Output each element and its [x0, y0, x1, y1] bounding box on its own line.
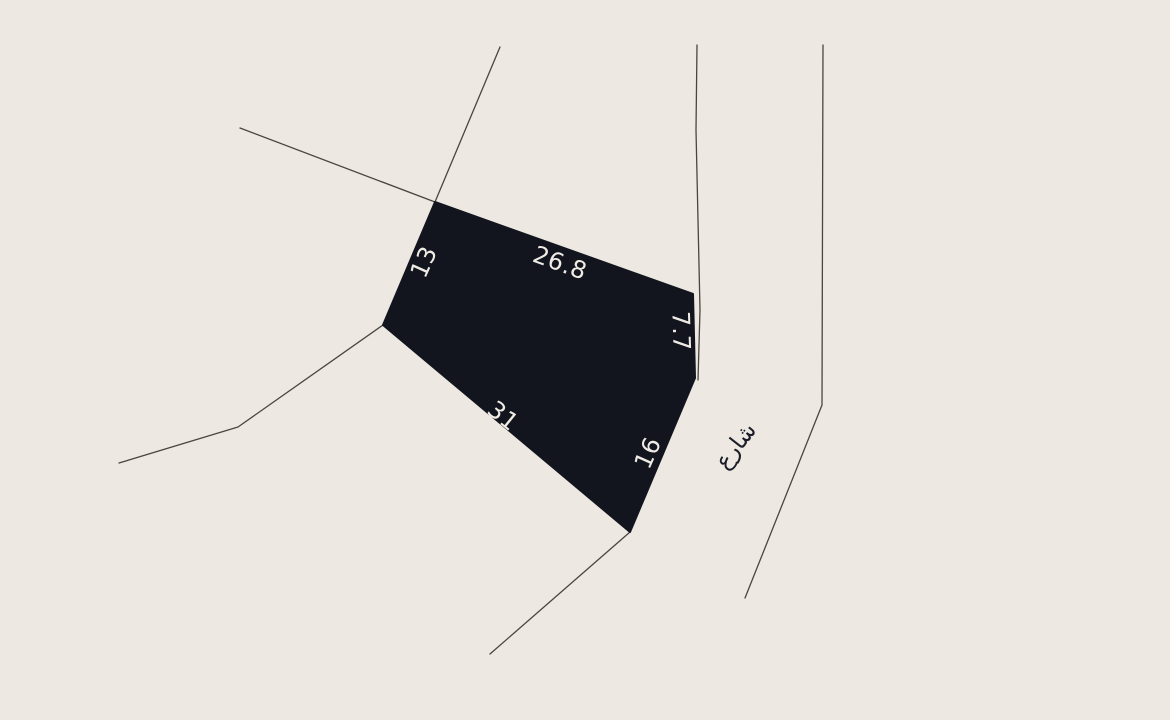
- plot-map: 13 26.8 7.7 31 16 شارع: [0, 0, 1170, 720]
- dimension-label-east: 7.7: [666, 311, 695, 352]
- plot-map-canvas: 13 26.8 7.7 31 16 شارع: [0, 0, 1170, 720]
